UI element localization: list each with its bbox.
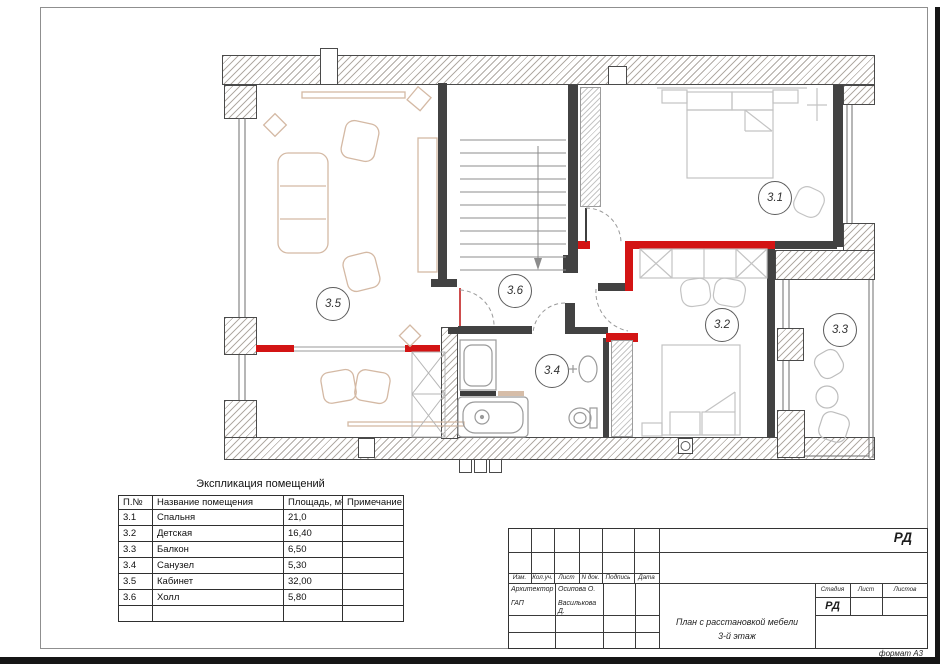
wall-nursery-right [767,248,775,437]
wall-nursery-door-stub [598,283,628,291]
tb-col-podpis: Подпись [602,574,634,583]
tb-sheets-label: Листов [882,585,928,595]
wall-bedroom-bottom [775,241,837,249]
table-row: 3.6Холл5,80 [119,590,404,606]
tb-name-architect: Осипова О. [558,586,603,594]
threshold-box [358,438,375,458]
bedroom-furniture [657,88,828,221]
tb-line [603,583,604,649]
tb-name-gap: Василькова Д. [558,600,604,615]
tb-line [555,583,556,649]
tb-line [815,615,928,616]
tb-role-gap: ГАП [511,600,555,608]
table-row: 3.1Спальня21,0 [119,510,404,526]
tb-col-koluch: Кол.уч. [531,574,554,583]
wall-left-mid [224,317,257,355]
room-label-3-4: 3.4 [535,354,569,388]
wall-bath-door-post [565,303,575,334]
wall-right-corner [843,85,875,105]
tb-col-list: Лист [554,574,579,583]
wall-office-right [438,83,447,279]
room-label-3-6: 3.6 [498,274,532,308]
drawing-title-line2: 3-й этаж [661,632,813,642]
tb-line [508,632,659,633]
window-lines [239,105,873,458]
closet-bedroom [580,87,601,207]
vent-box [608,66,627,85]
table-header-row: П.№ Название помещения Площадь, м² Приме… [119,496,404,510]
drain-box [678,438,693,454]
tb-stage-value: РД [815,598,850,614]
red-wall-bedroom-stub [578,241,590,249]
explication-title: Экспликация помещений [118,478,403,490]
red-wall-office-left [256,345,294,352]
room-label-3-5: 3.5 [316,287,350,321]
tb-line [508,552,928,553]
tb-line [508,583,928,584]
tb-sheet-label: Лист [850,585,882,595]
table-row: 3.3Балкон6,50 [119,542,404,558]
col-header: Примечание [343,496,404,510]
tb-col-izm: Изм. [508,574,531,583]
wall-bath-top-right [575,327,608,334]
table-row: 3.2Детская16,40 [119,526,404,542]
pier-box-2 [474,459,487,473]
tb-col-ndok: N док. [579,574,602,583]
closet-hall [611,340,633,437]
wall-bath-top-left [458,326,532,334]
table-row: 3.5Кабинет32,00 [119,574,404,590]
doc-code-top: РД [790,531,920,546]
room-label-3-1: 3.1 [758,181,792,215]
tb-line [635,583,636,649]
wall-bedroom-right [833,85,843,247]
pier-box-1 [459,459,472,473]
wall-stair-right-foot [563,255,578,273]
col-header: Площадь, м² [284,496,343,510]
stairs [460,140,566,270]
table-row: 3.4Санузел5,30 [119,558,404,574]
wall-balcony-top [775,250,875,280]
bathroom-fixtures [458,340,597,437]
wall-left-top [224,85,257,119]
room-label-3-2: 3.2 [705,308,739,342]
col-header: П.№ [119,496,153,510]
sheet-edge-right [935,7,940,657]
tb-role-architect: Архитектор [511,586,555,594]
balcony-furniture [811,346,851,444]
col-header: Название помещения [153,496,284,510]
wall-bath-right [603,338,609,437]
office-furniture [264,87,464,426]
wall-balcony-bottom [777,410,805,458]
pier-box-3 [489,459,502,473]
red-wall-bedroom-main [625,241,775,249]
tb-stage-label: Стадия [815,585,850,595]
wall-balcony-pier [777,328,804,361]
table-row [119,606,404,622]
wall-bath-left [441,327,458,439]
wall-office-cap [431,279,457,287]
explication-table: П.№ Название помещения Площадь, м² Приме… [118,495,404,622]
sheet-edge-bottom [0,657,940,664]
red-wall-office-right [405,345,440,352]
nursery-furniture [640,249,767,436]
tb-col-data: Дата [634,574,659,583]
chimney-shaft [320,48,338,85]
tb-line [659,528,660,649]
room-label-3-3: 3.3 [823,313,857,347]
floor-plan: 3.1 3.2 3.3 3.4 3.5 3.6 [0,0,940,520]
red-wall-nursery-left [625,249,633,291]
wall-stair-right [568,85,578,255]
drawing-title-line1: План с расстановкой мебели [661,618,813,628]
drawing-sheet: 3.1 3.2 3.3 3.4 3.5 3.6 Экспликация поме… [0,0,940,664]
